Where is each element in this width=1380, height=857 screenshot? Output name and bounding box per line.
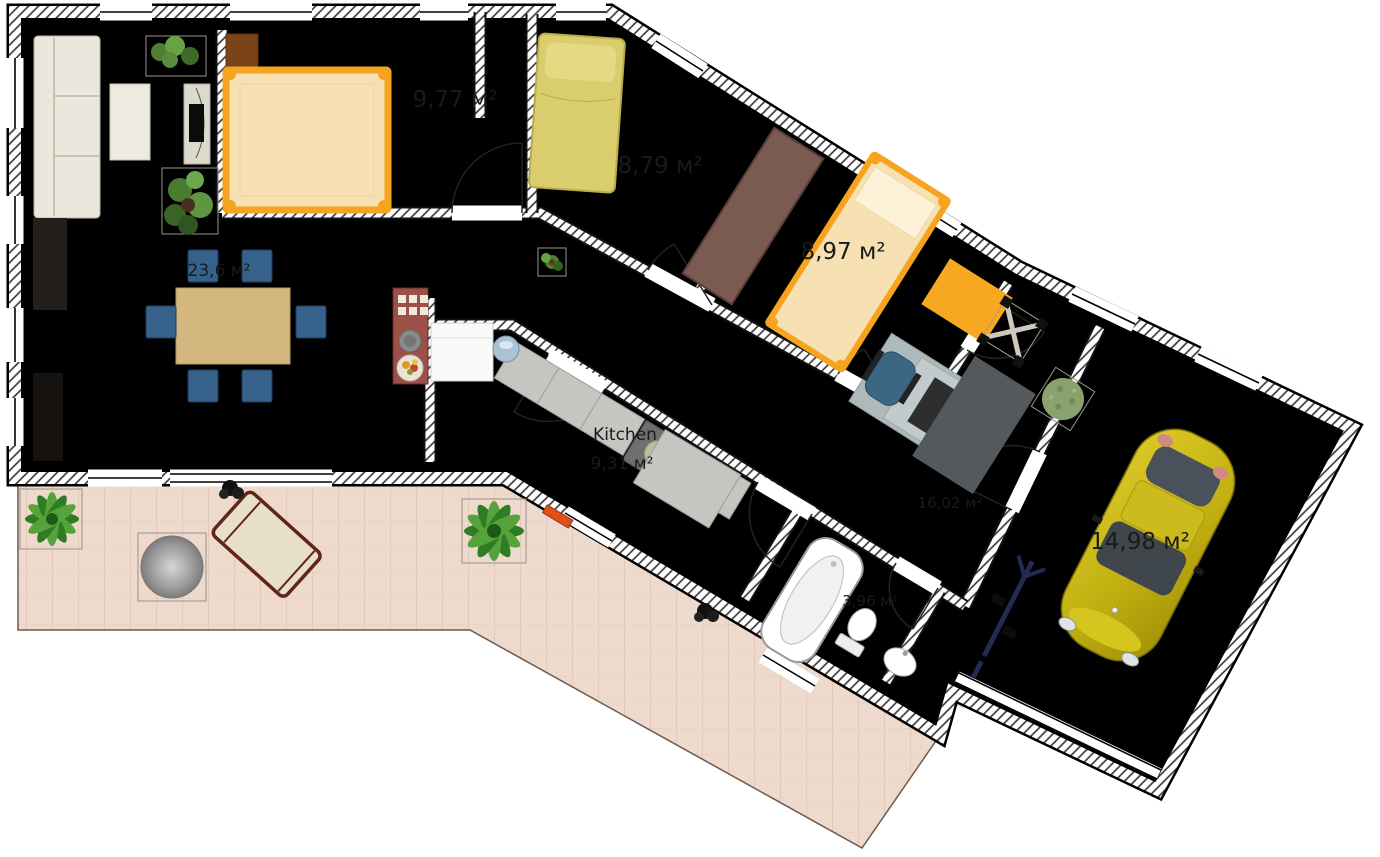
stove-cabinet[interactable] [393,288,428,384]
floor-plan-canvas: 9,77 м² 8,79 м² 8,97 м² 23,6 м² Kitchen … [0,0,1380,857]
label-bedroom-3: 8,97 м² [800,239,885,265]
sliding-terrace-door [170,474,332,482]
tv-stand[interactable] [184,84,210,164]
label-bedroom-1: 9,77 м² [412,87,497,113]
tv [189,104,204,142]
nightstand[interactable] [226,34,258,68]
label-bedroom-2: 8,79 м² [617,153,702,179]
label-hallway: 16,02 м² [917,494,982,512]
label-kitchen-name: Kitchen [593,425,657,445]
label-kitchen-area: 9,31 м² [591,454,654,474]
bookshelf[interactable] [33,373,63,461]
label-bathroom: 3,96 м² [842,592,898,610]
floor-plan: 9,77 м² 8,79 м² 8,97 м² 23,6 м² Kitchen … [0,0,1380,857]
dining-table[interactable] [176,288,290,364]
corner-sofa[interactable] [34,36,100,218]
coffee-table[interactable] [110,84,150,160]
single-bed[interactable] [529,33,626,193]
label-living-room: 23,6 м² [188,261,251,281]
double-bed[interactable] [224,68,390,212]
washing-machine[interactable] [431,323,493,381]
label-garage: 14,98 м² [1090,529,1190,555]
kitchen-sink[interactable] [493,336,519,362]
bookshelf[interactable] [33,218,67,310]
